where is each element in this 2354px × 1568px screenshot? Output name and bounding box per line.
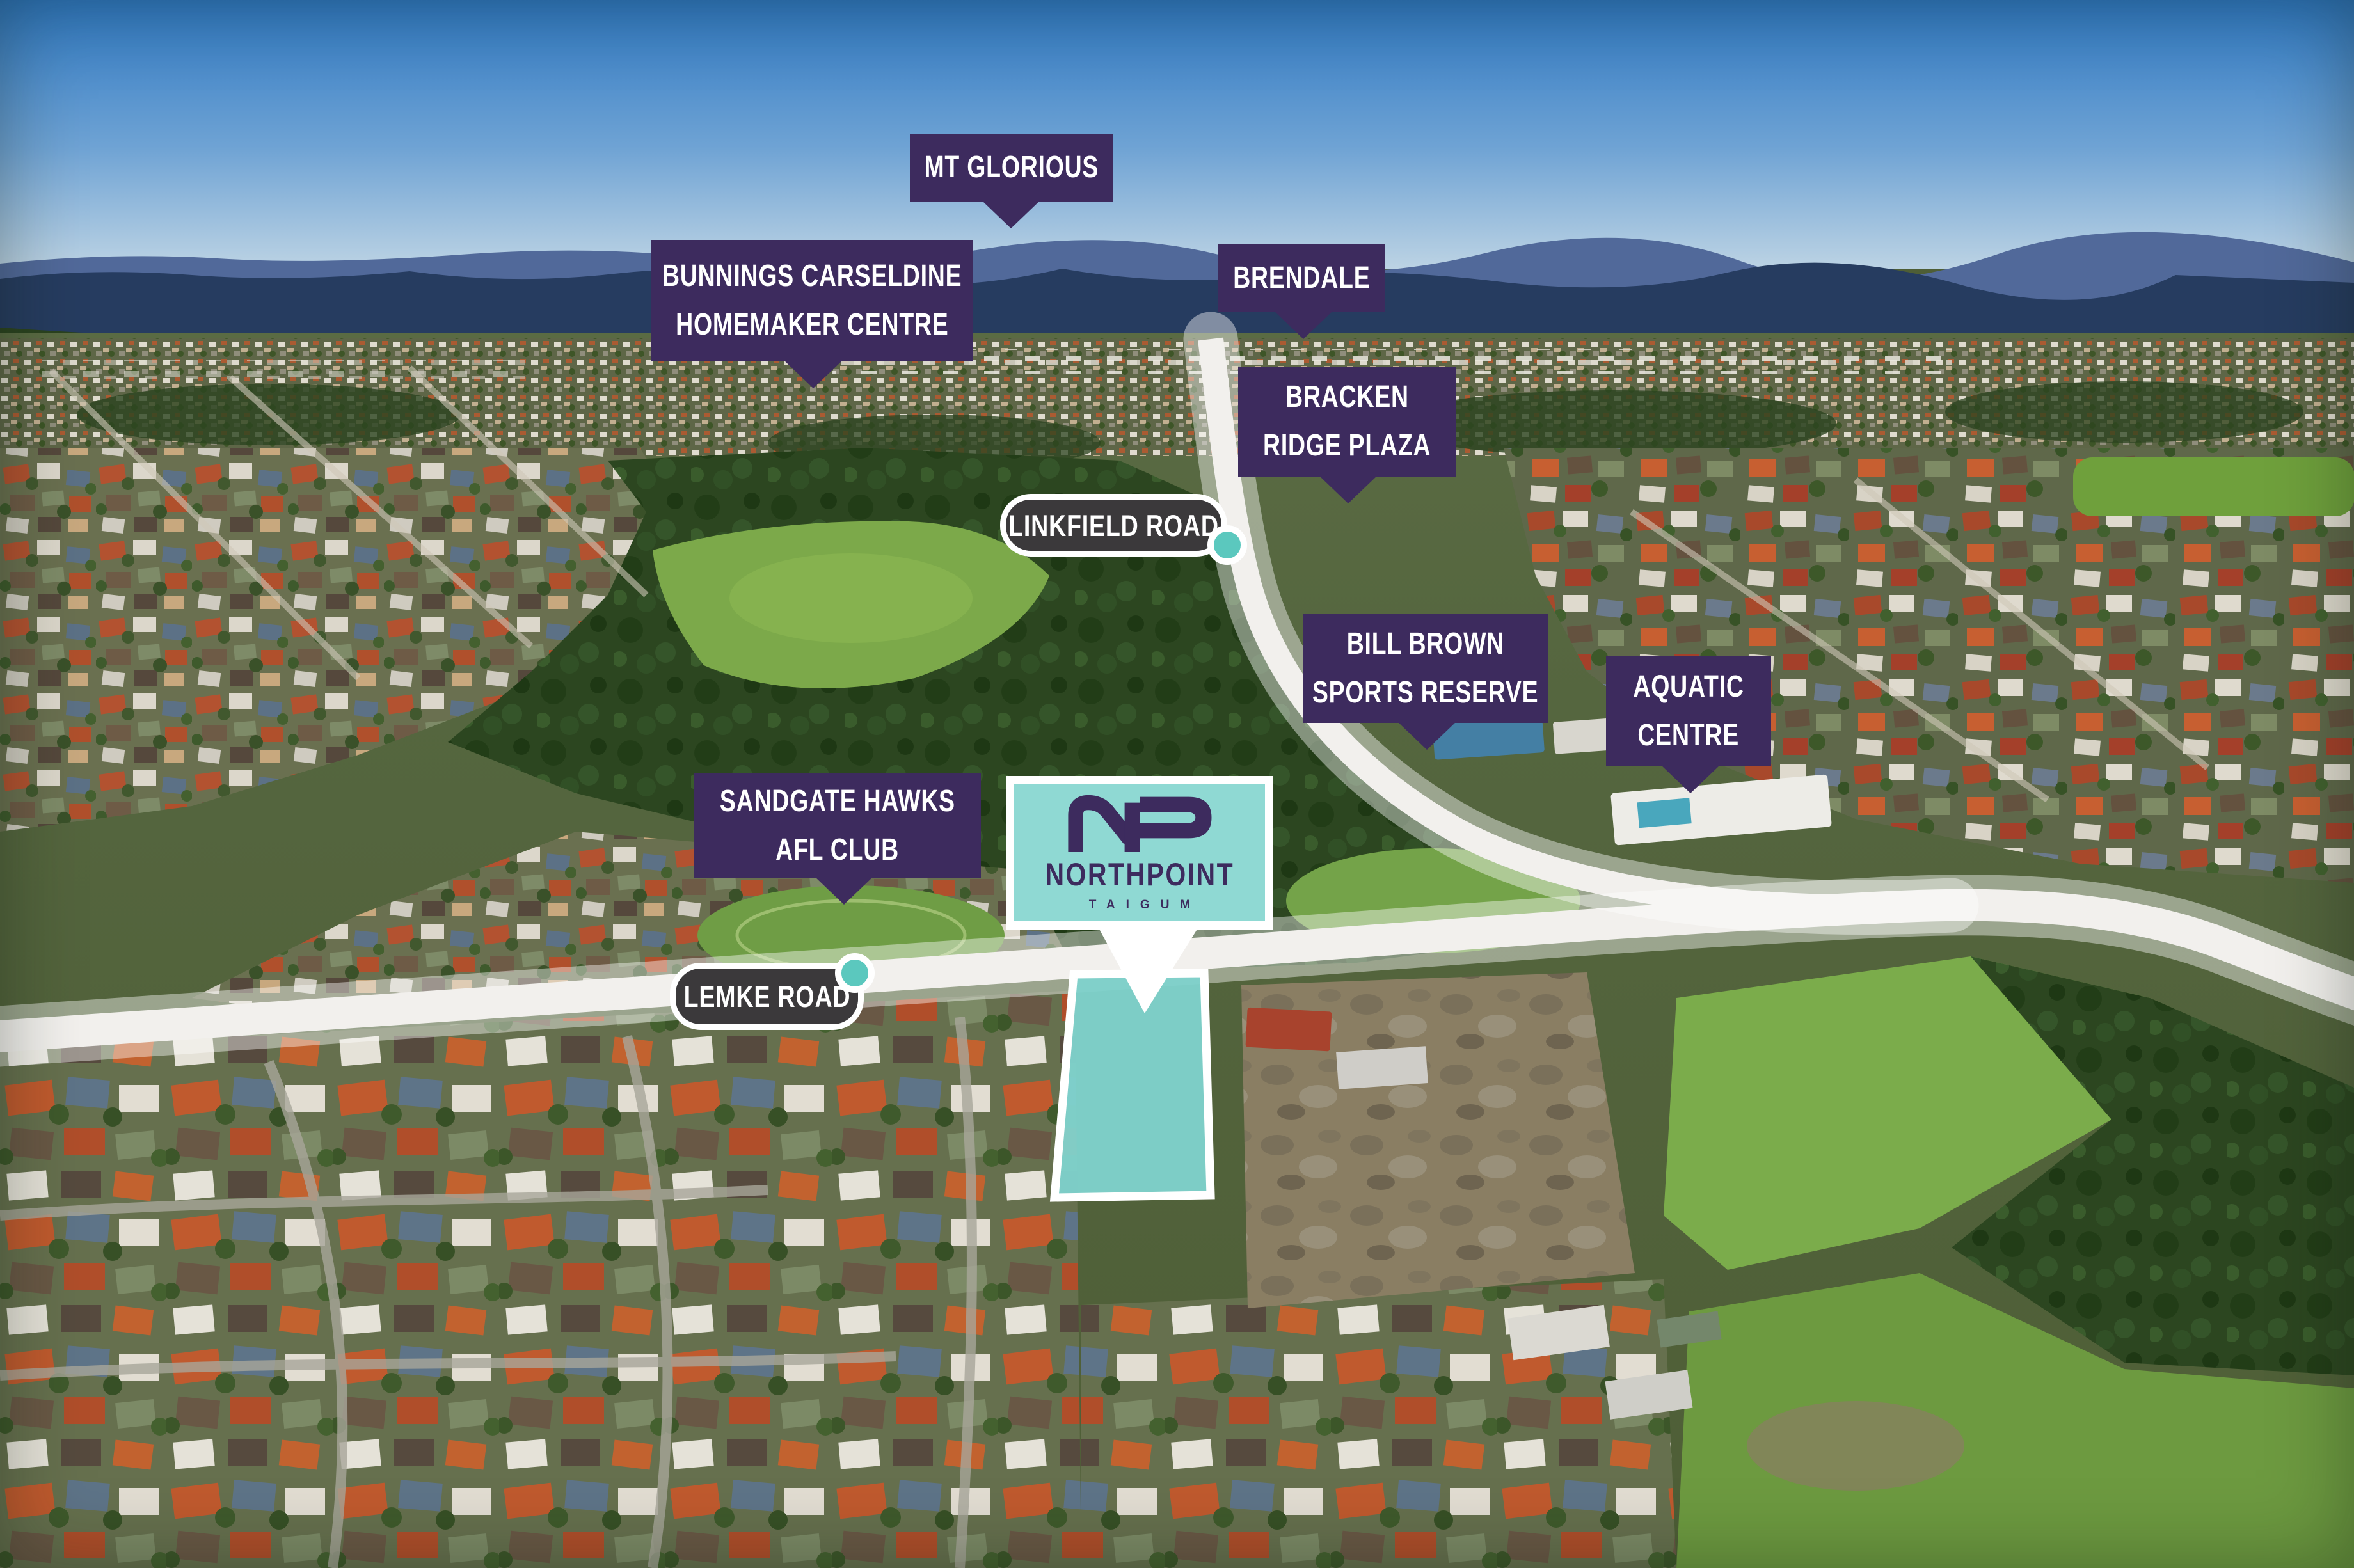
northpoint-monogram-icon — [1067, 795, 1212, 852]
site-parcel-highlight — [1054, 973, 1211, 1198]
label-line: AQUATIC — [1633, 663, 1744, 711]
aerial-location-map: { "title": "Northpoint Taigum aerial ame… — [0, 0, 2354, 1568]
label-line: RIDGE PLAZA — [1263, 422, 1431, 470]
label-lemke-road: LEMKE ROAD — [670, 963, 864, 1030]
northpoint-wordmark: NORTHPOINT — [1045, 859, 1234, 891]
label-sandgate-hawks-afl-club: SANDGATE HAWKS AFL CLUB — [694, 773, 981, 878]
label-brendale-text: BRENDALE — [1214, 254, 1390, 303]
road-label-text: LINKFIELD ROAD — [1008, 508, 1219, 543]
label-mt-glorious-text: MT GLORIOUS — [900, 143, 1124, 192]
label-line: SANDGATE HAWKS — [720, 777, 955, 826]
label-pointer-tail — [1319, 475, 1378, 503]
northpoint-suburb-text: TAIGUM — [1078, 899, 1202, 911]
label-line: AFL CLUB — [776, 826, 900, 875]
road-label-text: LEMKE ROAD — [683, 979, 850, 1014]
label-linkfield-road: LINKFIELD ROAD — [1000, 494, 1227, 557]
label-pointer-tail — [784, 360, 843, 388]
label-aquatic-centre: AQUATIC CENTRE — [1606, 656, 1771, 766]
label-line: CENTRE — [1638, 711, 1740, 760]
northpoint-logo-box: NORTHPOINT TAIGUM — [1006, 776, 1273, 930]
label-mt-glorious: MT GLORIOUS — [910, 134, 1113, 202]
label-line: HOMEMAKER CENTRE — [676, 301, 948, 349]
label-line: SPORTS RESERVE — [1312, 669, 1539, 717]
label-bill-brown-text: BILL BROWN SPORTS RESERVE — [1280, 620, 1570, 717]
label-line: BILL BROWN — [1347, 620, 1504, 669]
label-pointer-tail — [1661, 765, 1720, 793]
label-line: BUNNINGS CARSELDINE — [662, 252, 962, 301]
label-bunnings-text: BUNNINGS CARSELDINE HOMEMAKER CENTRE — [620, 252, 1004, 349]
road-marker-dot-icon — [1207, 525, 1247, 565]
label-brendale: BRENDALE — [1218, 244, 1385, 312]
label-pointer-tail — [815, 876, 873, 905]
label-pointer-tail — [982, 200, 1040, 228]
label-pointer-tail — [1274, 311, 1333, 339]
label-line: MT GLORIOUS — [925, 143, 1099, 192]
label-bracken-text: BRACKEN RIDGE PLAZA — [1239, 373, 1454, 470]
label-pointer-tail — [1397, 722, 1456, 750]
label-sandgate-text: SANDGATE HAWKS AFL CLUB — [687, 777, 989, 875]
label-bunnings-carseldine: BUNNINGS CARSELDINE HOMEMAKER CENTRE — [651, 240, 973, 361]
label-bill-brown-sports-reserve: BILL BROWN SPORTS RESERVE — [1303, 614, 1548, 723]
label-aquatic-text: AQUATIC CENTRE — [1618, 663, 1760, 760]
label-line: BRACKEN — [1285, 373, 1409, 422]
label-line: BRENDALE — [1233, 254, 1370, 303]
label-bracken-ridge-plaza: BRACKEN RIDGE PLAZA — [1238, 367, 1456, 477]
road-marker-dot-icon — [835, 953, 875, 993]
